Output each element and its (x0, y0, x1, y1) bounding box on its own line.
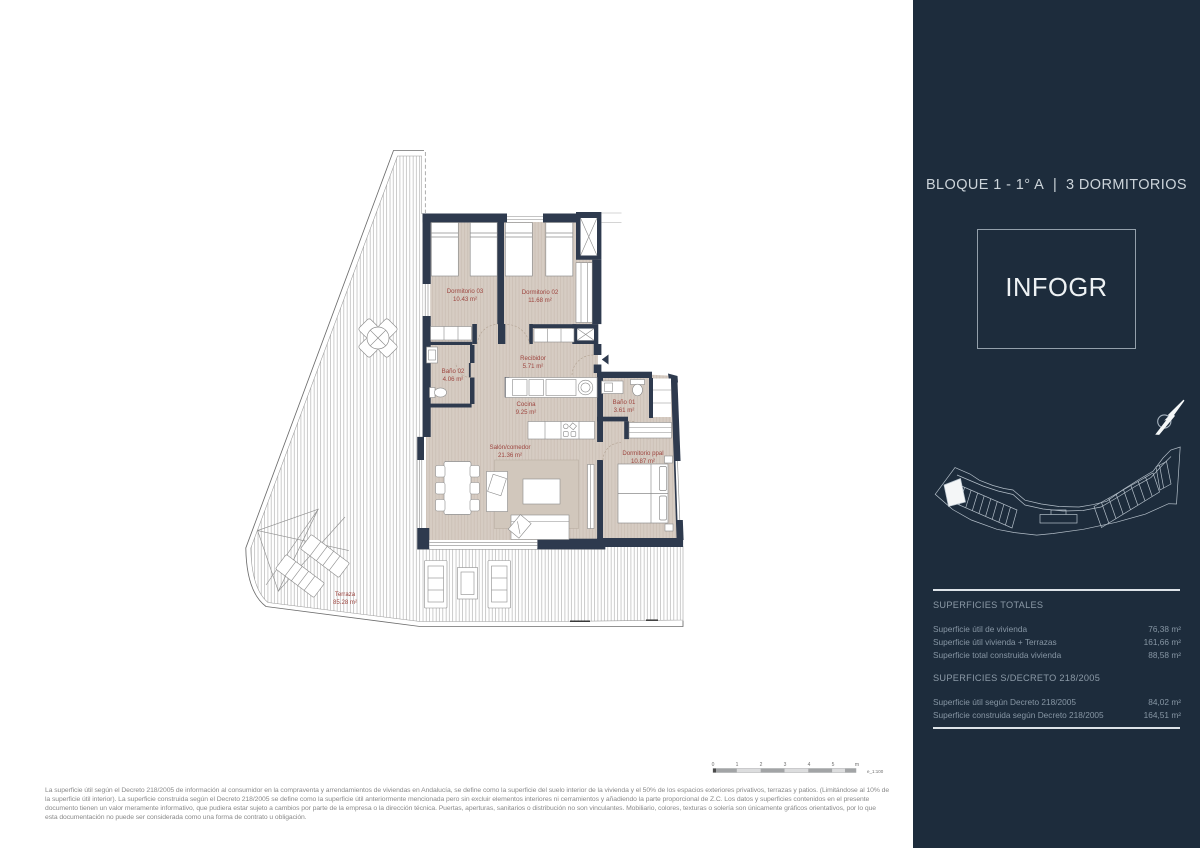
svg-text:5.71 m²: 5.71 m² (523, 363, 544, 370)
svg-text:5: 5 (832, 762, 835, 768)
svg-text:Terraza: Terraza (335, 591, 356, 598)
svg-text:Recibidor: Recibidor (520, 355, 546, 362)
svg-text:0: 0 (712, 762, 715, 768)
svg-text:10.87 m²: 10.87 m² (631, 458, 655, 465)
svg-text:e_1:100: e_1:100 (867, 769, 884, 774)
svg-text:Baño 01: Baño 01 (613, 399, 636, 406)
svg-text:Dormitorio ppal: Dormitorio ppal (622, 450, 663, 457)
svg-text:m: m (855, 762, 859, 768)
svg-text:2: 2 (760, 762, 763, 768)
svg-text:Dormitorio 02: Dormitorio 02 (522, 289, 559, 296)
svg-text:3: 3 (784, 762, 787, 768)
svg-text:4.06 m²: 4.06 m² (443, 376, 464, 383)
svg-text:Cocina: Cocina (517, 401, 537, 408)
svg-text:21.36 m²: 21.36 m² (498, 452, 522, 459)
svg-text:85.28 m²: 85.28 m² (333, 599, 357, 606)
svg-text:Baño 02: Baño 02 (442, 368, 465, 375)
svg-text:1: 1 (736, 762, 739, 768)
svg-text:11.68 m²: 11.68 m² (528, 297, 552, 304)
svg-text:4: 4 (808, 762, 811, 768)
svg-text:Dormitorio 03: Dormitorio 03 (447, 288, 484, 295)
svg-text:10.43 m²: 10.43 m² (453, 296, 477, 303)
svg-text:9.25 m²: 9.25 m² (516, 409, 537, 416)
svg-text:3.61 m²: 3.61 m² (614, 407, 635, 414)
svg-text:Salón/comedor: Salón/comedor (490, 444, 531, 451)
